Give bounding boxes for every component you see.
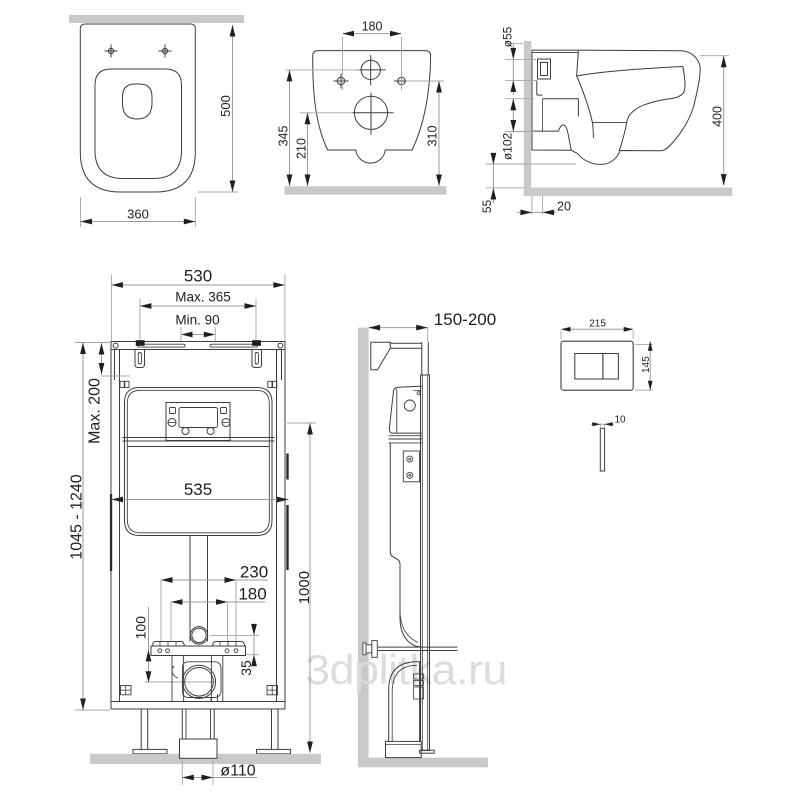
svg-text:ø55: ø55 — [500, 26, 514, 47]
svg-text:230: 230 — [240, 563, 268, 582]
svg-text:145: 145 — [641, 356, 652, 373]
svg-text:10: 10 — [615, 415, 627, 426]
svg-text:35: 35 — [238, 660, 254, 676]
svg-text:Max. 200: Max. 200 — [86, 378, 103, 444]
svg-text:55: 55 — [480, 200, 494, 214]
svg-text:360: 360 — [127, 207, 149, 222]
svg-text:180: 180 — [238, 585, 266, 604]
svg-text:345: 345 — [277, 126, 291, 147]
svg-text:215: 215 — [589, 319, 606, 330]
svg-text:180: 180 — [362, 20, 383, 34]
svg-text:ø102: ø102 — [501, 133, 515, 161]
svg-text:3dplitka.ru: 3dplitka.ru — [305, 646, 507, 693]
svg-text:1000: 1000 — [296, 571, 313, 604]
svg-text:530: 530 — [184, 267, 212, 286]
svg-text:ø110: ø110 — [220, 763, 255, 780]
svg-text:310: 310 — [426, 126, 440, 147]
svg-text:Min. 90: Min. 90 — [175, 313, 219, 328]
svg-text:20: 20 — [557, 200, 571, 214]
svg-text:400: 400 — [711, 106, 725, 127]
svg-text:210: 210 — [295, 138, 309, 159]
svg-text:500: 500 — [218, 95, 233, 117]
svg-text:150-200: 150-200 — [434, 310, 496, 329]
svg-text:Max. 365: Max. 365 — [175, 290, 231, 305]
svg-text:535: 535 — [184, 480, 212, 499]
svg-text:100: 100 — [132, 616, 148, 640]
svg-text:1045 - 1240: 1045 - 1240 — [68, 474, 85, 560]
